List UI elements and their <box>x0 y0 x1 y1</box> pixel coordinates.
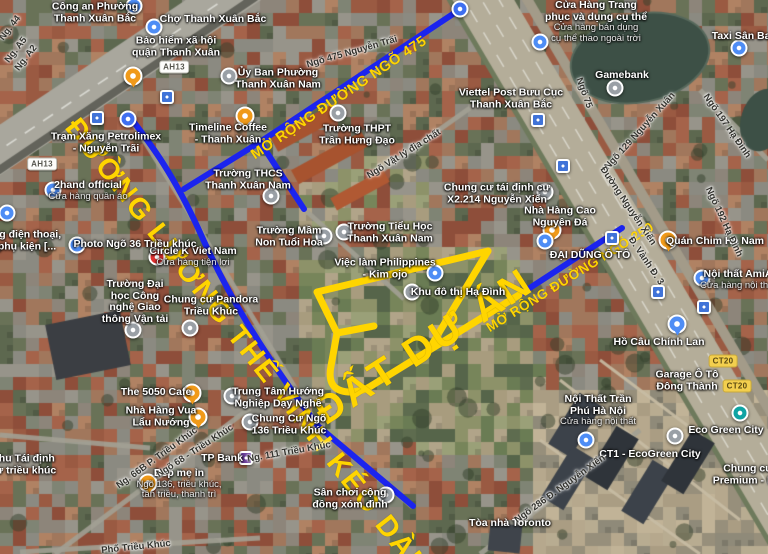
satellite-basemap <box>0 0 768 554</box>
satellite-map[interactable]: ĐẤT DỰ ÁN ĐƯỜNG LƯƠNG THẾ VINH KÉO DÀI M… <box>0 0 768 554</box>
